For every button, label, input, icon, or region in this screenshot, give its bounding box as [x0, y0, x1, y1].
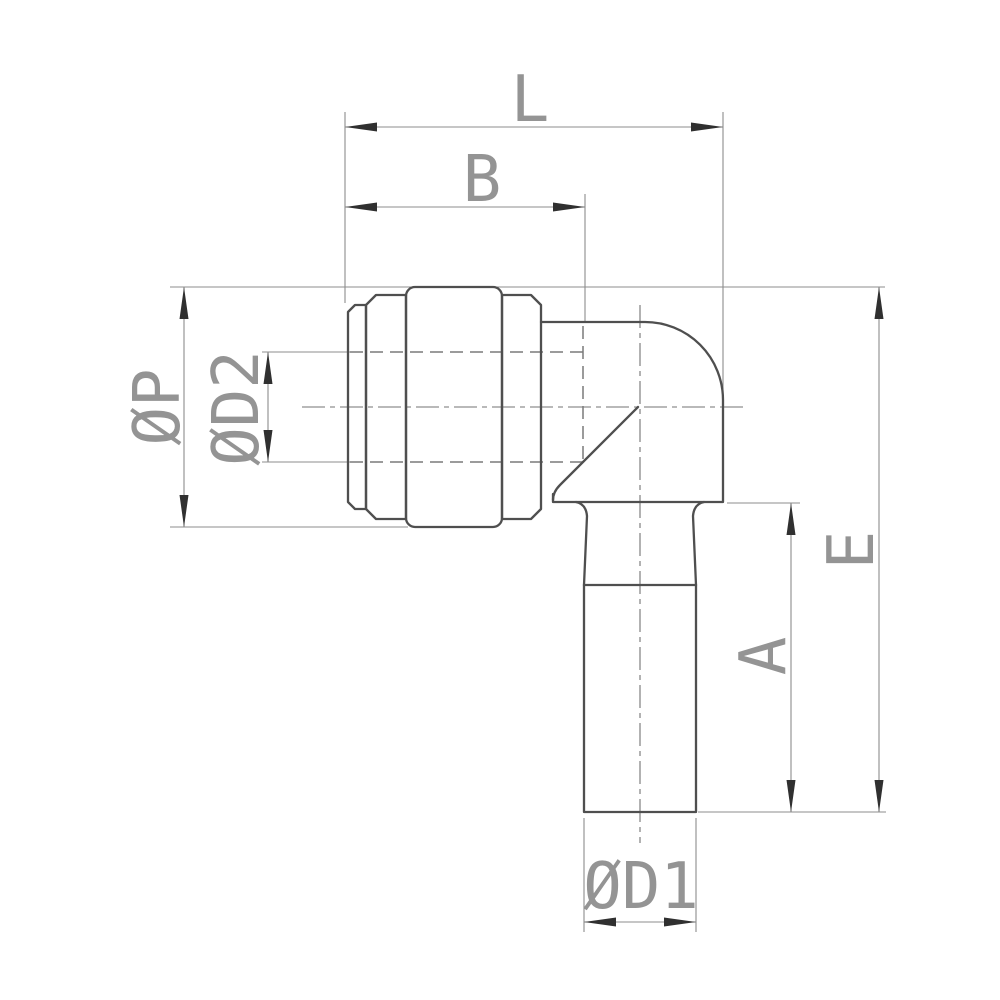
elbow-chamfer-diagonal — [553, 407, 638, 500]
hidden-bore-lines — [350, 326, 583, 464]
arrow-B-right — [553, 203, 585, 212]
arrow-E-bottom — [875, 780, 884, 812]
dim-label-phi-D2: ØD2 — [200, 350, 274, 466]
arrow-L-left — [345, 123, 377, 132]
arrow-A-bottom — [787, 780, 796, 812]
center-lines — [302, 305, 747, 843]
elbow-fitting-technical-drawing: L B ØP ØD2 E A ØD1 — [0, 0, 1000, 1000]
arrow-B-left — [345, 203, 377, 212]
arrow-E-top — [875, 287, 884, 319]
stem-shoulder-left — [576, 502, 587, 585]
drawing-canvas: L B ØP ØD2 E A ØD1 — [0, 0, 1000, 1000]
arrow-P-bottom — [180, 495, 189, 527]
dim-label-L: L — [511, 63, 550, 137]
dimension-lines — [170, 112, 886, 932]
dim-label-E: E — [815, 531, 889, 570]
dim-label-phi-P: ØP — [121, 368, 195, 445]
dimension-arrowheads — [180, 123, 884, 927]
dim-label-A: A — [727, 637, 801, 676]
dim-label-phi-D1: ØD1 — [583, 850, 699, 924]
stem-shoulder-right — [693, 502, 704, 585]
fitting-body — [348, 287, 723, 812]
arrow-A-top — [787, 503, 796, 535]
dimension-labels: L B ØP ØD2 E A ØD1 — [121, 63, 889, 924]
arrow-P-top — [180, 287, 189, 319]
dim-label-B: B — [463, 143, 502, 217]
arrow-L-right — [691, 123, 723, 132]
